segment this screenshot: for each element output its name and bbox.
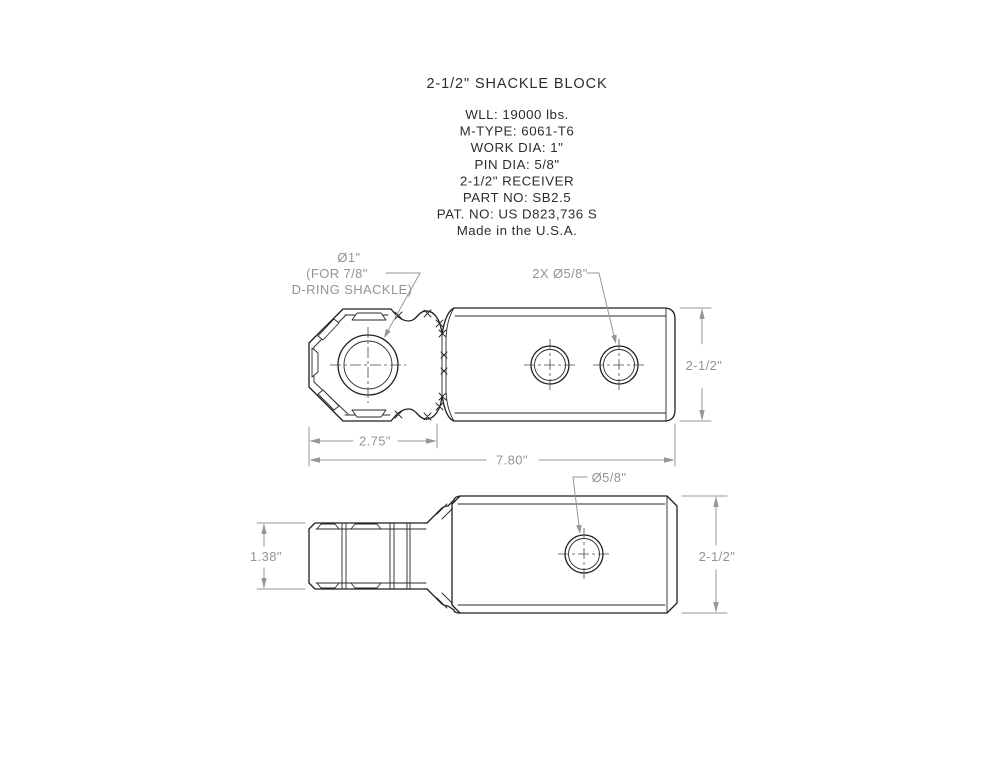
drawing-title: 2-1/2" SHACKLE BLOCK bbox=[426, 76, 607, 92]
dim-overall-length-value: 7.80" bbox=[496, 453, 528, 468]
spec-line-pindia: PIN DIA: 5/8" bbox=[474, 157, 559, 172]
spec-line-madein: Made in the U.S.A. bbox=[457, 223, 578, 238]
label-shackle-hole-line3: D-RING SHACKLE) bbox=[292, 282, 413, 297]
technical-drawing-sheet: 2-1/2" SHACKLE BLOCK WLL: 19000 lbs. M-T… bbox=[0, 0, 1000, 773]
label-shackle-hole-line1: Ø1" bbox=[337, 250, 360, 265]
spec-line-wll: WLL: 19000 lbs. bbox=[465, 107, 569, 122]
drawing-canvas: 2-1/2" SHACKLE BLOCK WLL: 19000 lbs. M-T… bbox=[0, 0, 1000, 773]
dim-head-width-value: 2.75" bbox=[359, 434, 391, 449]
dim-side-height-value: 2-1/2" bbox=[699, 549, 736, 564]
label-side-pin-hole-value: Ø5/8" bbox=[592, 470, 627, 485]
spec-line-patno: PAT. NO: US D823,736 S bbox=[437, 207, 598, 222]
dim-shank-height-value: 1.38" bbox=[250, 549, 282, 564]
spec-line-workdia: WORK DIA: 1" bbox=[471, 140, 564, 155]
spec-line-receiver: 2-1/2" RECEIVER bbox=[460, 173, 574, 188]
dim-top-height-value: 2-1/2" bbox=[686, 358, 723, 373]
label-pin-holes-value: 2X Ø5/8" bbox=[532, 266, 588, 281]
spec-line-mtype: M-TYPE: 6061-T6 bbox=[460, 124, 575, 139]
spec-line-partno: PART NO: SB2.5 bbox=[463, 190, 571, 205]
label-shackle-hole-line2: (FOR 7/8" bbox=[306, 266, 368, 281]
